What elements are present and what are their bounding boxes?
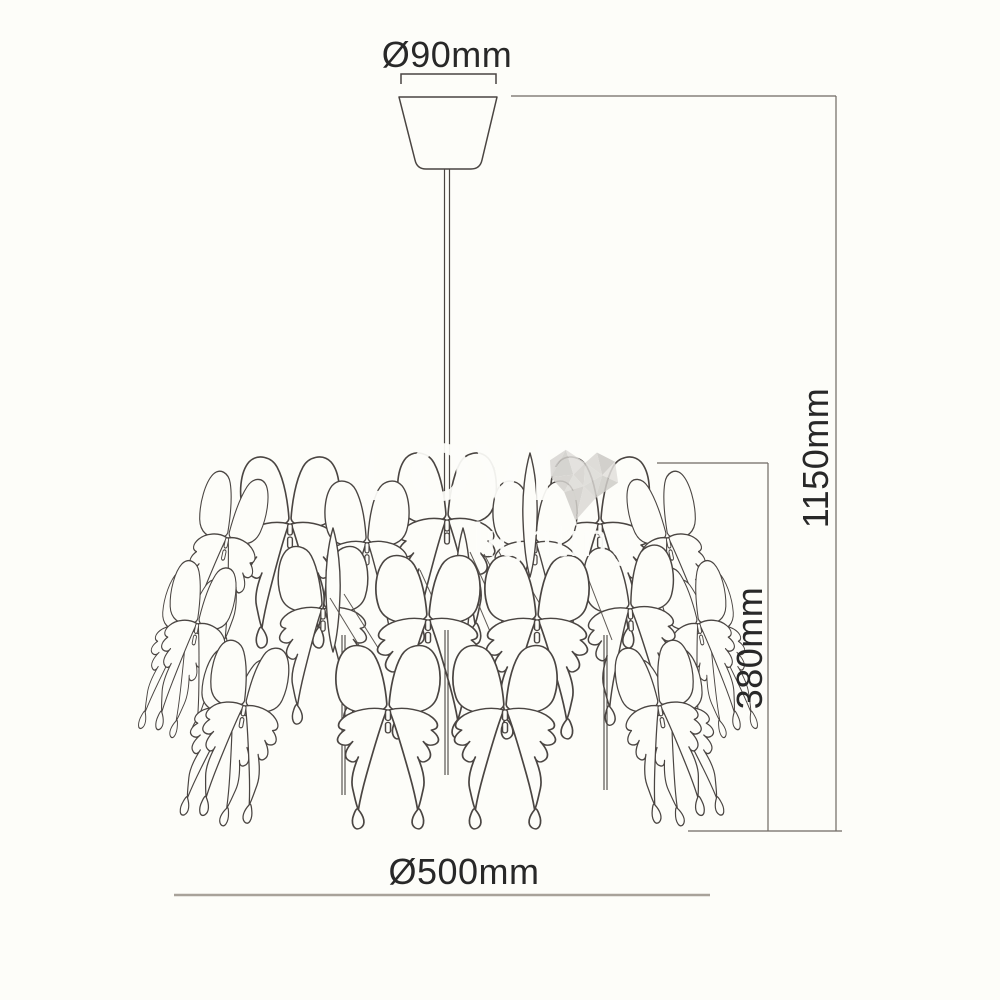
dim-label-shade-diameter: Ø500mm [388,851,539,893]
ceiling-cup [399,97,497,169]
pendant-cord [445,169,450,540]
dim-label-shade-height: 380mm [729,587,771,710]
dim-label-canopy-diameter: Ø90mm [382,34,513,76]
butterfly [336,646,440,829]
chandelier-line-art [0,0,1000,1000]
butterfly-shade [129,453,768,830]
dim-label-overall-height: 1150mm [795,388,837,528]
technical-drawing-canvas: LOVE lighting Ø90mm 1150mm 380mm Ø500mm [0,0,1000,1000]
